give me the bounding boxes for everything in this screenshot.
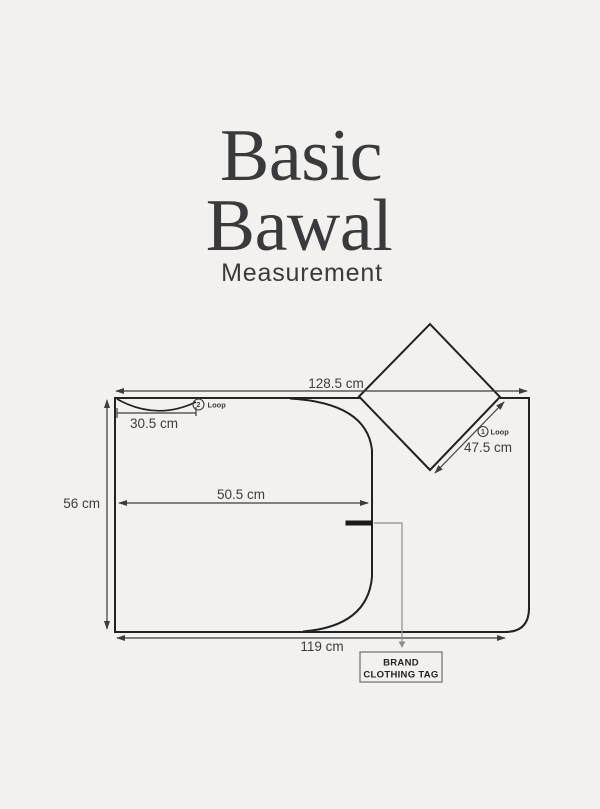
measurements-group: 128.5 cm 30.5 cm 56 cm 50.5 cm 119 cm 47…: [63, 376, 527, 654]
loop2-label: Loop: [208, 401, 227, 410]
garment-outline: [115, 398, 529, 632]
title-block: Basic Bawal Measurement: [206, 115, 393, 287]
top-width-value: 128.5 cm: [308, 376, 364, 391]
tag-leader-line: [374, 523, 402, 644]
loop2-width-value: 30.5 cm: [130, 416, 178, 431]
loop1-callout: 1 Loop: [478, 427, 509, 437]
inner-width-value: 50.5 cm: [217, 487, 265, 502]
loop2-callout: 2 Loop: [193, 399, 226, 410]
tag-marker-bar: [346, 521, 374, 526]
garment-outline-group: [115, 324, 529, 632]
brand-tag-line1: BRAND: [383, 658, 419, 669]
side-height-value: 56 cm: [63, 496, 100, 511]
scoop-fold-curve: [117, 399, 196, 411]
loop1-number: 1: [481, 429, 485, 436]
loop2-number: 2: [197, 402, 201, 409]
tag-leader-arrowhead-icon: [399, 642, 406, 649]
diagram-canvas: Basic Bawal Measurement 128.5 cm 30.5 cm: [0, 0, 600, 809]
measurement-diagram-page: Basic Bawal Measurement 128.5 cm 30.5 cm: [0, 0, 600, 809]
loop1-label: Loop: [491, 428, 510, 437]
brand-tag-line2: CLOTHING TAG: [363, 670, 438, 681]
title-line2: Bawal: [206, 185, 393, 267]
loop1-length-value: 47.5 cm: [464, 440, 512, 455]
bottom-width-value: 119 cm: [300, 639, 343, 654]
title-subtitle: Measurement: [221, 259, 383, 287]
brand-tag-callout: BRAND CLOTHING TAG: [346, 521, 443, 683]
loop1-length-arrow: [435, 402, 504, 473]
inner-fold-curve: [290, 399, 372, 632]
